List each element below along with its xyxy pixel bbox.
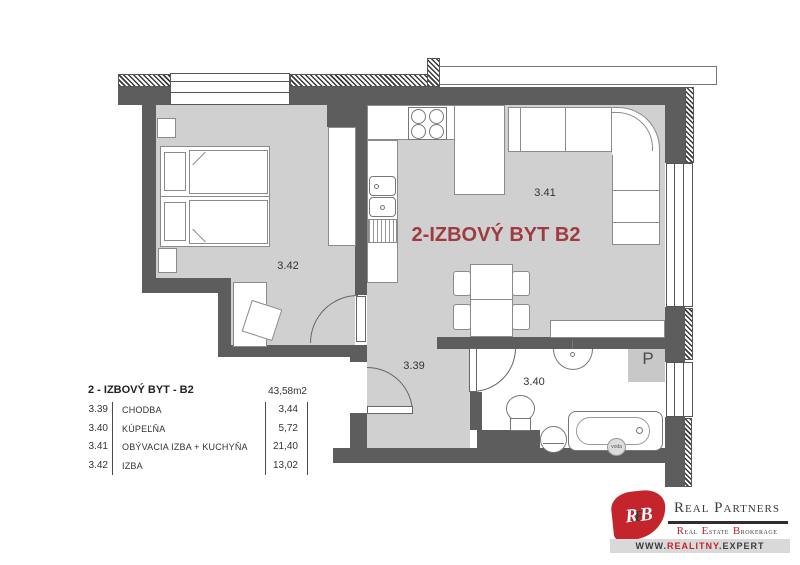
- bathtub-drain: [636, 427, 643, 434]
- dining-chair: [512, 304, 530, 330]
- washing-machine: [540, 426, 567, 453]
- water-connection: voda: [607, 438, 626, 456]
- sink-drain: [380, 205, 385, 210]
- legend-header: 2 - IZBOVÝ BYT - B2: [88, 384, 194, 396]
- legend-row-name: IZBA: [122, 461, 143, 471]
- hatch-right-upper: [685, 87, 694, 163]
- wall-bedroom-kitchen: [355, 105, 367, 295]
- bathroom-door-arc: [472, 348, 516, 392]
- legend-row-area: 3,44: [262, 404, 298, 415]
- logo-name: Real Partners: [666, 500, 788, 517]
- wall-left: [142, 105, 156, 285]
- website-prefix: WWW.: [635, 541, 667, 551]
- logo-tagline-word: Estate: [702, 525, 729, 537]
- legend-row-number: 3.39: [80, 404, 108, 415]
- bedroom-window: [170, 73, 290, 105]
- sofa-cushion-line: [613, 222, 659, 223]
- living-window-line: [674, 164, 675, 306]
- legend-row-number: 3.42: [80, 460, 108, 471]
- floor-plan: voda 2-IZBOVÝ BYT B2 3.41 3.42 3.39 3.40…: [0, 0, 800, 565]
- legend-row-name: CHODBA: [122, 405, 162, 415]
- bedroom-door-leaf: [356, 296, 366, 342]
- legend-row-number: 3.40: [80, 423, 108, 434]
- logo-tagline-word: Real: [677, 525, 698, 537]
- bathroom-door-leaf: [469, 348, 477, 392]
- hatch-balcony-column: [427, 58, 440, 87]
- dining-chair: [453, 271, 471, 296]
- nightstand: [158, 248, 177, 273]
- legend-row-name: KÚPEĽŇA: [122, 424, 165, 434]
- dining-chair: [453, 304, 471, 330]
- wall-bathroom-left: [470, 392, 482, 430]
- sofa-cushion-line: [520, 108, 521, 151]
- wall-hallway-left-top: [350, 355, 367, 362]
- legend-divider: [112, 402, 113, 475]
- wall-right-upper: [665, 105, 685, 163]
- bathroom-window-line: [683, 363, 684, 416]
- legend-row-number: 3.41: [80, 441, 108, 452]
- logo-shield: REB: [610, 488, 669, 541]
- room-label-bedroom: 3.42: [270, 260, 306, 272]
- balcony-end-cap: [716, 66, 717, 85]
- room-label-hallway: 3.39: [396, 360, 432, 372]
- living-window-line: [683, 164, 684, 306]
- corner-sofa-right-arm: [612, 155, 660, 245]
- logo-tagline-word: Brokerage: [733, 525, 778, 537]
- sink-drainer: [368, 219, 397, 243]
- sink-drain: [374, 184, 379, 189]
- parking-label: P: [634, 349, 662, 369]
- nightstand: [157, 118, 176, 138]
- stove-burner: [411, 109, 426, 124]
- dining-table: [470, 264, 513, 337]
- plan-title: 2-IZBOVÝ BYT B2: [408, 224, 584, 247]
- pillow: [164, 202, 186, 241]
- wall-hallway-left-bottom: [350, 413, 367, 450]
- logo-monogram: REB: [624, 504, 653, 526]
- bedroom-window-line: [171, 81, 289, 82]
- dining-table-leaf-line: [471, 299, 512, 300]
- legend-row-name: OBÝVACIA IZBA + KUCHYŇA: [122, 442, 248, 452]
- wall-right-mid: [665, 307, 685, 362]
- wall-bedroom-nook-stub: [327, 105, 367, 127]
- bathroom-window: [666, 362, 693, 417]
- washbasin-drain: [570, 352, 575, 357]
- wall-top-main: [290, 87, 685, 105]
- legend-total-area: 43,58m2: [260, 386, 307, 397]
- balcony-edge-line: [440, 66, 717, 67]
- website-domain: REALITNY: [667, 541, 719, 551]
- stove-burner: [411, 124, 426, 139]
- sofa-cushion-line: [613, 190, 659, 191]
- washing-machine-line: [543, 443, 564, 444]
- entrance-door-leaf: [367, 406, 413, 414]
- logo-website-banner: WWW.REALITNY.EXPERT: [610, 539, 790, 553]
- website-suffix: .EXPERT: [719, 541, 765, 551]
- logo-tagline: RealEstateBrokerage: [664, 525, 790, 537]
- hatch-top-mid: [290, 74, 430, 87]
- legend-row-area: 21,40: [262, 441, 298, 452]
- kitchen-island: [454, 105, 505, 195]
- bathroom-window-line: [674, 363, 675, 416]
- legend-row-area: 13,02: [262, 460, 298, 471]
- room-label-living: 3.41: [526, 187, 564, 199]
- corner-sofa-top-arm: [508, 107, 612, 152]
- stove-burner: [429, 124, 444, 139]
- stove-burner: [429, 109, 444, 124]
- legend-divider: [307, 402, 308, 475]
- balcony-edge-line: [440, 84, 717, 85]
- sofa-cushion-line: [565, 108, 566, 151]
- logo-rule: [668, 521, 788, 524]
- toilet-tank: [510, 418, 531, 431]
- bedroom-window-line: [171, 92, 289, 93]
- hatch-top-left: [118, 74, 172, 87]
- legend-row-area: 5,72: [262, 423, 298, 434]
- wall-step-horizontal: [142, 278, 231, 293]
- wardrobe: [328, 127, 356, 246]
- bed-divider-line: [161, 196, 269, 197]
- pillow: [164, 152, 186, 191]
- wall-top-left: [118, 87, 172, 105]
- dining-chair: [512, 271, 530, 296]
- room-label-bathroom: 3.40: [516, 376, 552, 388]
- sideboard: [550, 320, 665, 338]
- wall-bathroom-corner-block: [477, 430, 540, 450]
- living-window: [666, 163, 693, 307]
